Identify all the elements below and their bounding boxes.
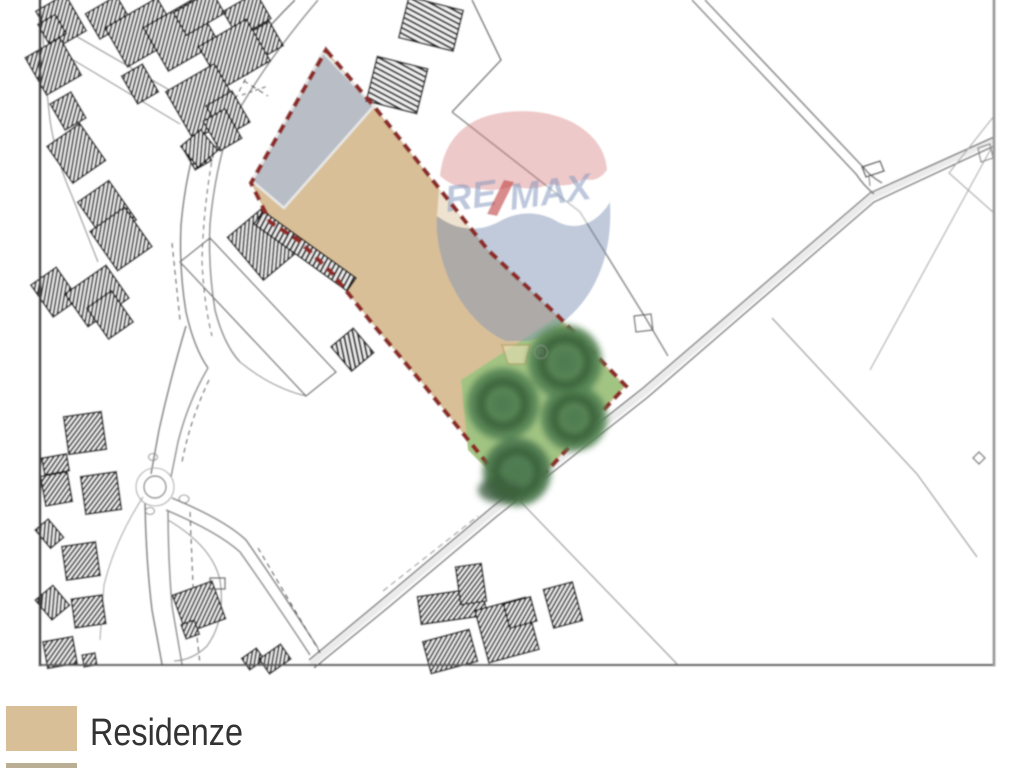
svg-text:R: R xyxy=(538,348,545,358)
svg-text:Residenze: Residenze xyxy=(90,712,243,754)
